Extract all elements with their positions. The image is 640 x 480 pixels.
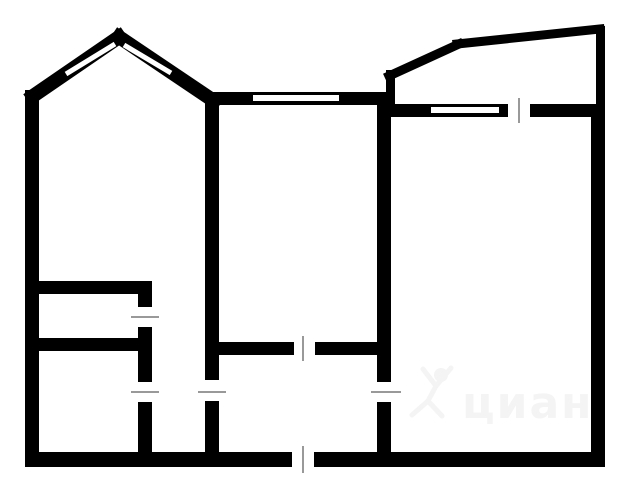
right-outer-wall <box>591 104 605 467</box>
toilet-top-wall <box>25 281 152 294</box>
toilet-door-stub <box>138 293 152 307</box>
watermark-limb-2 <box>428 386 436 401</box>
left-outer-wall <box>25 90 39 467</box>
door-ticks-layer <box>131 98 519 473</box>
bath-partition-lower <box>138 402 152 452</box>
floorplan-canvas: циан <box>0 0 640 480</box>
bottom-wall-left <box>25 452 292 467</box>
hall-top-wall-left <box>212 342 294 355</box>
right-wall-balcony <box>596 26 605 108</box>
cian-person-icon <box>412 368 451 416</box>
balcony-wall-slope <box>389 44 459 76</box>
cian-watermark: циан <box>412 368 594 429</box>
wall-right-vertical-upper <box>377 92 391 382</box>
hall-top-wall-right <box>315 342 391 355</box>
cian-watermark-text: циан <box>462 378 594 429</box>
balcony-floor-wall-right <box>530 104 605 117</box>
balcony-wall-top <box>457 29 600 44</box>
wall-left-vertical-upper <box>205 94 219 380</box>
watermark-limb-3 <box>412 401 428 415</box>
watermark-limb-4 <box>428 401 442 416</box>
wall-left-vertical-lower <box>205 401 219 453</box>
toilet-bottom-wall <box>25 338 152 351</box>
wall-right-vertical-lower <box>377 402 391 453</box>
watermark-limb-0 <box>423 369 436 386</box>
bath-partition-mid <box>138 327 152 382</box>
bottom-wall-right <box>314 452 605 467</box>
floorplan: циан <box>0 0 640 480</box>
